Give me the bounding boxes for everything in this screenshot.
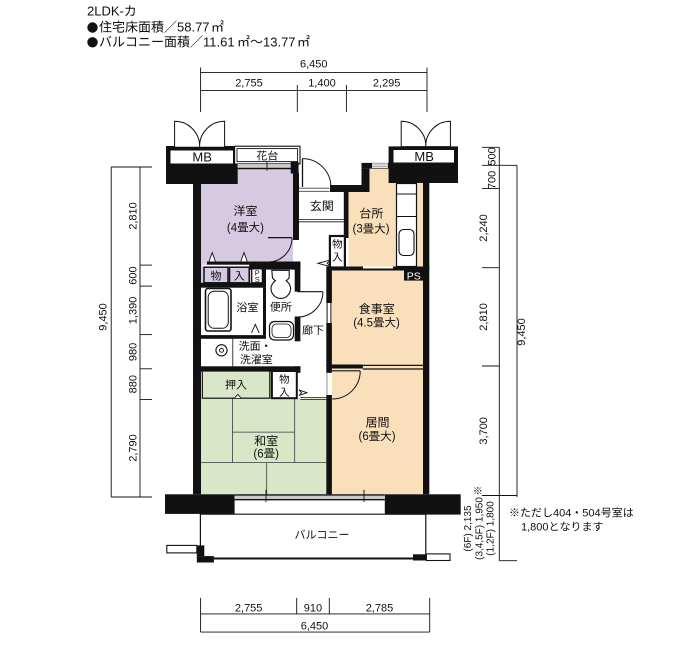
svg-text:500: 500: [487, 147, 499, 165]
svg-text:404: 404: [553, 508, 571, 520]
svg-text:2,785: 2,785: [366, 603, 394, 615]
svg-text:): ): [275, 448, 279, 460]
svg-text:910: 910: [304, 603, 322, 615]
svg-text:58.77: 58.77: [177, 20, 210, 35]
svg-text:2,755: 2,755: [235, 77, 263, 89]
svg-text:880: 880: [128, 375, 140, 393]
svg-text:2,240: 2,240: [478, 214, 490, 242]
svg-text:2,295: 2,295: [373, 77, 401, 89]
svg-text:): ): [386, 224, 390, 236]
svg-text:13.77: 13.77: [263, 34, 296, 49]
svg-text:504: 504: [582, 508, 600, 520]
svg-text:9,450: 9,450: [98, 303, 110, 331]
svg-text:(4.5: (4.5: [353, 318, 373, 330]
svg-text:(3: (3: [353, 224, 363, 236]
svg-text:S: S: [255, 275, 260, 284]
svg-text:11.61: 11.61: [203, 34, 235, 49]
svg-text:1,390: 1,390: [128, 297, 140, 325]
svg-text:(6: (6: [253, 448, 263, 460]
svg-text:MB: MB: [414, 149, 434, 164]
svg-text:PS: PS: [407, 270, 421, 282]
svg-text:(4: (4: [227, 222, 238, 234]
svg-text:6,450: 6,450: [301, 620, 329, 632]
svg-text:): ): [396, 318, 400, 330]
svg-text:700: 700: [487, 171, 499, 189]
svg-text:(1,2F) 1,800: (1,2F) 1,800: [486, 501, 497, 556]
svg-text:(3,4,5F) 1,950: (3,4,5F) 1,950: [475, 497, 486, 560]
svg-text:2,755: 2,755: [235, 603, 263, 615]
svg-text:6,450: 6,450: [300, 59, 328, 71]
svg-text:980: 980: [128, 343, 140, 361]
svg-text:2,810: 2,810: [478, 303, 490, 331]
svg-text:(6F) 2,135: (6F) 2,135: [463, 505, 474, 552]
svg-text:9,450: 9,450: [516, 318, 528, 346]
svg-text:2,790: 2,790: [128, 434, 140, 462]
svg-text:1,400: 1,400: [308, 77, 336, 89]
svg-text:600: 600: [128, 266, 140, 284]
svg-text:): ): [392, 431, 396, 443]
svg-text:3,700: 3,700: [478, 417, 490, 445]
svg-text:2,810: 2,810: [128, 202, 140, 230]
svg-text:2LDK-: 2LDK-: [87, 4, 124, 19]
svg-text:MB: MB: [192, 150, 212, 165]
svg-text:1,800: 1,800: [521, 522, 549, 534]
svg-text:(6: (6: [359, 431, 369, 443]
svg-text:): ): [260, 222, 264, 234]
